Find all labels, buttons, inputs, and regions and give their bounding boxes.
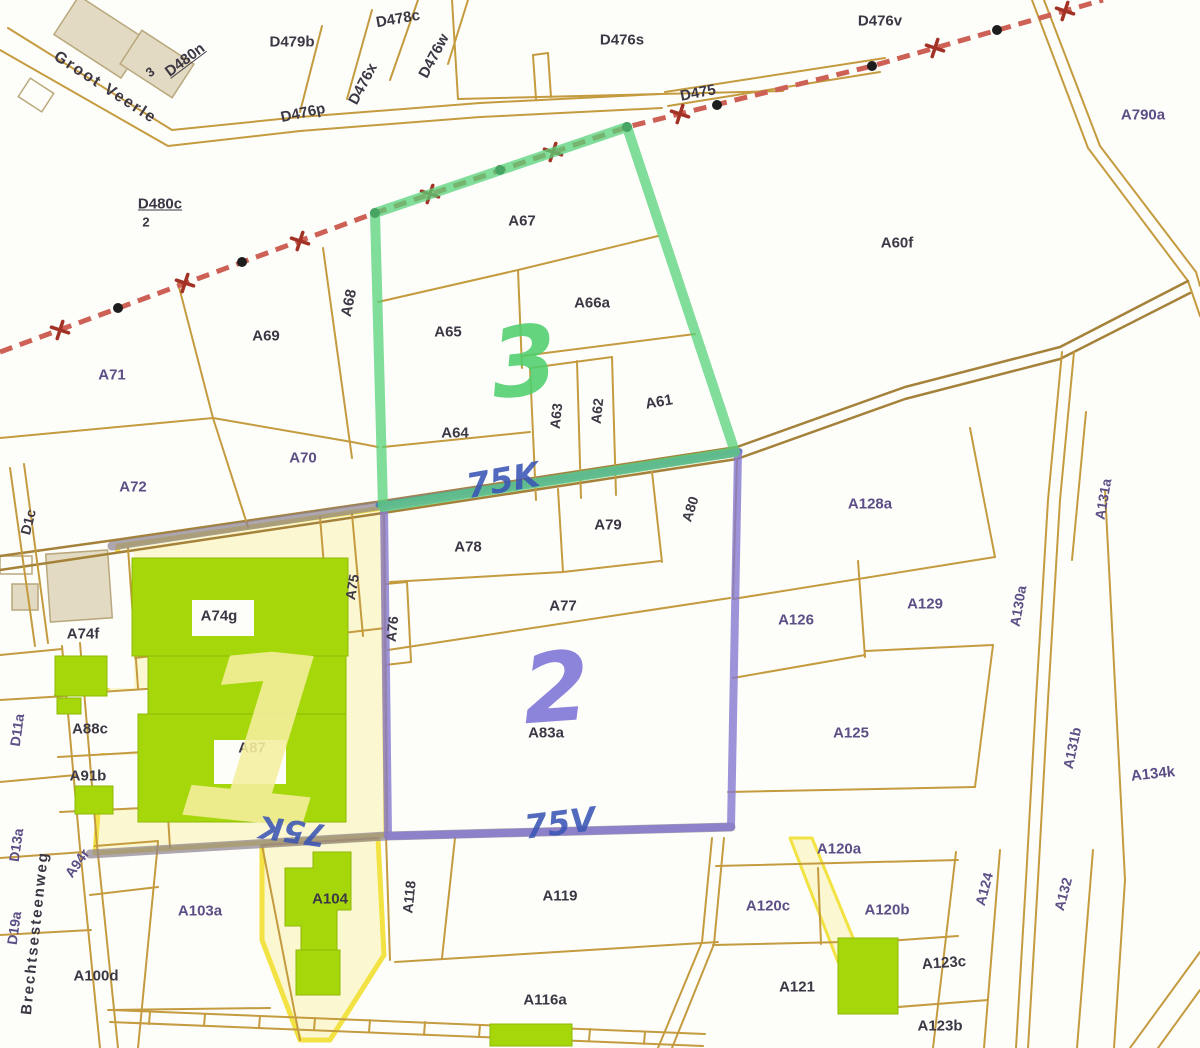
parcel-label: A118 (400, 880, 417, 914)
parcel-label: D476v (858, 14, 902, 29)
parcel-label: A80 (679, 495, 700, 524)
parcel-label: A71 (98, 368, 126, 383)
parcel-label: A103a (178, 904, 222, 919)
parcel-label: D479b (269, 35, 314, 50)
parcel-label: A60f (881, 236, 914, 251)
parcel-label: D478c (375, 8, 421, 30)
parcel-label: A74f (67, 627, 100, 642)
parcel-label: A65 (434, 325, 462, 340)
parcel-label: D480c (138, 197, 182, 212)
parcel-label: A69 (252, 329, 280, 344)
parcel-label: D19a (5, 910, 24, 945)
label-layer: D479bD478cD476wD476xD476pD480n3D476sD475… (0, 0, 1200, 1048)
parcel-label: A70 (289, 451, 317, 466)
parcel-label: A131b (1061, 726, 1083, 770)
parcel-label: D11a (8, 713, 26, 747)
parcel-label: D476w (416, 31, 452, 80)
handwritten-annotation: 2 (519, 638, 592, 738)
parcel-label: A128a (848, 497, 892, 512)
parcel-label: A78 (454, 540, 482, 555)
parcel-label: A120c (746, 899, 790, 914)
parcel-label: A120b (864, 903, 909, 918)
handwritten-annotation: 3 (486, 311, 562, 413)
parcel-label: A88c (72, 722, 108, 737)
parcel-label: A79 (594, 518, 622, 533)
street-label: Groot Veerle (51, 49, 160, 127)
handwritten-annotation: 75K (258, 810, 329, 850)
parcel-label: A125 (833, 726, 869, 741)
parcel-label: D1c (18, 508, 38, 536)
parcel-label: A67 (508, 214, 536, 229)
parcel-label: A76 (384, 615, 401, 642)
parcel-label: A119 (542, 889, 577, 904)
parcel-label: A131a (1093, 477, 1114, 520)
parcel-label: A123c (921, 954, 966, 972)
parcel-label: A134k (1130, 764, 1176, 784)
parcel-label: A94r (62, 846, 91, 880)
parcel-label: D480n (163, 40, 208, 79)
parcel-label: A129 (907, 597, 943, 612)
parcel-label: A68 (339, 288, 359, 318)
handwritten-annotation: 75V (523, 802, 598, 843)
cadastral-map: D479bD478cD476wD476xD476pD480n3D476sD475… (0, 0, 1200, 1048)
parcel-label: A123b (917, 1019, 962, 1034)
parcel-label: A75 (343, 573, 361, 601)
parcel-label: A130a (1008, 584, 1029, 627)
parcel-label: A126 (778, 613, 814, 628)
parcel-label: A104 (312, 892, 348, 907)
parcel-label: D476x (346, 61, 380, 107)
parcel-label: D13a (7, 827, 26, 862)
parcel-label: A91b (70, 769, 107, 784)
parcel-label: A132 (1052, 876, 1074, 912)
lot-number-label: 3 (143, 65, 157, 80)
parcel-label: A100d (73, 969, 118, 984)
parcel-label: A62 (589, 397, 606, 424)
parcel-label: A66a (574, 296, 610, 311)
road-label: D475 (679, 82, 717, 104)
parcel-label: A61 (644, 392, 674, 412)
parcel-label: A64 (441, 426, 469, 441)
parcel-label: A116a (523, 993, 566, 1008)
lot-number-label: 2 (142, 216, 149, 229)
parcel-label: D476s (600, 33, 644, 48)
parcel-label: A120a (817, 842, 861, 857)
handwritten-annotation: 75K (464, 458, 542, 504)
parcel-label: A124 (973, 871, 995, 907)
parcel-label: A121 (779, 980, 815, 995)
street-label: Brechtsesteenweg (19, 850, 51, 1015)
parcel-label: D476p (279, 101, 326, 125)
parcel-label: A77 (549, 599, 577, 614)
parcel-label: A72 (119, 480, 147, 495)
parcel-label: A790a (1121, 108, 1165, 123)
